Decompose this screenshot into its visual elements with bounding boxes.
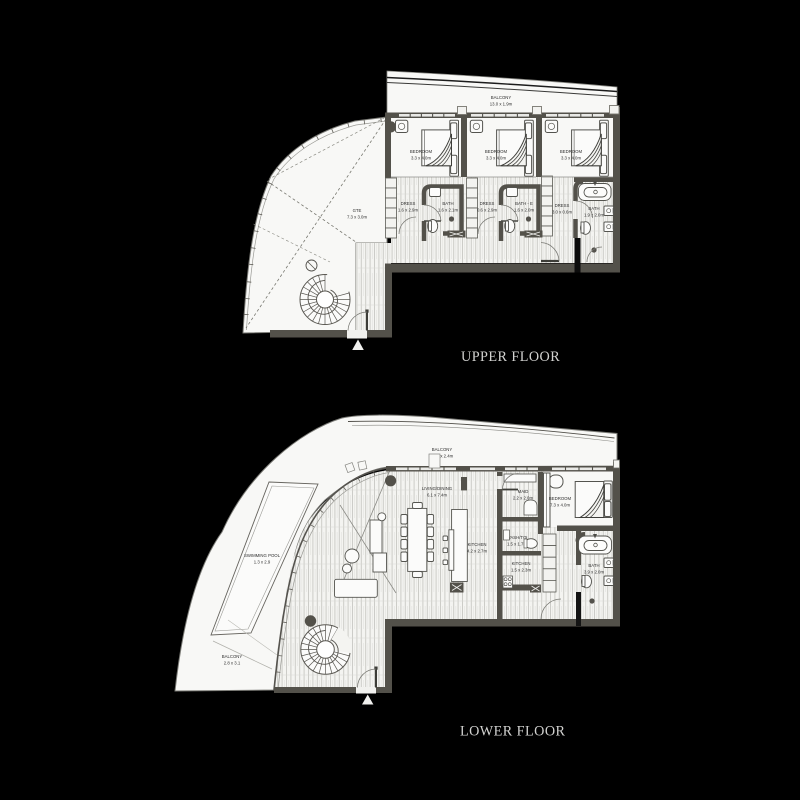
svg-text:MAID: MAID — [518, 489, 529, 494]
svg-text:7.3 x 4.0m: 7.3 x 4.0m — [550, 503, 570, 508]
svg-text:1.9 x 2.0m: 1.9 x 2.0m — [584, 213, 604, 218]
svg-text:3.0 x 0.6m: 3.0 x 0.6m — [552, 210, 572, 215]
svg-text:BEDROOM: BEDROOM — [549, 496, 572, 501]
svg-text:BALCONY: BALCONY — [432, 447, 453, 452]
svg-text:KITCHEN: KITCHEN — [512, 561, 531, 566]
svg-text:1.6 x 2.1m: 1.6 x 2.1m — [438, 208, 458, 213]
svg-text:6.1 x 7.4m: 6.1 x 7.4m — [427, 493, 447, 498]
svg-text:BALCONY: BALCONY — [222, 654, 243, 659]
svg-text:LIVING/DINING: LIVING/DINING — [422, 486, 453, 491]
svg-text:BATH: BATH — [588, 563, 599, 568]
svg-text:1.5 x 2.3m: 1.5 x 2.3m — [511, 568, 531, 573]
svg-text:BEDROOM: BEDROOM — [410, 149, 433, 154]
svg-text:7.3 x 3.0m: 7.3 x 3.0m — [347, 215, 367, 220]
svg-text:SWIMMING POOL: SWIMMING POOL — [244, 553, 281, 558]
svg-text:3.3 x 4.0m: 3.3 x 4.0m — [411, 156, 431, 161]
svg-text:DRESS: DRESS — [555, 203, 570, 208]
svg-text:0.6 x 2.9m: 0.6 x 2.9m — [477, 208, 497, 213]
svg-text:BEDROOM: BEDROOM — [560, 149, 583, 154]
svg-text:GTE: GTE — [353, 208, 362, 213]
svg-text:DRESS: DRESS — [401, 201, 416, 206]
svg-text:2.2 x 2.0m: 2.2 x 2.0m — [513, 496, 533, 501]
svg-text:BEDROOM: BEDROOM — [485, 149, 508, 154]
svg-text:1.6 x 2.0m: 1.6 x 2.0m — [514, 208, 534, 213]
svg-text:4.2 x 2.7m: 4.2 x 2.7m — [467, 549, 487, 554]
svg-text:3.3 x 4.0m: 3.3 x 4.0m — [486, 156, 506, 161]
svg-text:1.3 x 2.9: 1.3 x 2.9 — [254, 560, 271, 565]
svg-text:LOWER FLOOR: LOWER FLOOR — [460, 724, 566, 740]
svg-text:3.3 x 4.0m: 3.3 x 4.0m — [561, 156, 581, 161]
svg-text:2.8 x 3.1: 2.8 x 3.1 — [224, 661, 241, 666]
svg-text:UPPER FLOOR: UPPER FLOOR — [461, 349, 560, 365]
svg-text:DRESS: DRESS — [480, 201, 495, 206]
svg-text:BATH: BATH — [442, 201, 453, 206]
svg-text:BALCONY: BALCONY — [491, 95, 512, 100]
svg-text:1.6 x 2.9m: 1.6 x 2.9m — [398, 208, 418, 213]
svg-text:BATH - E: BATH - E — [515, 201, 533, 206]
svg-text:13.0 x 1.9m: 13.0 x 1.9m — [490, 102, 513, 107]
svg-text:3.9 x 2.0m: 3.9 x 2.0m — [584, 570, 604, 575]
svg-text:KITCHEN: KITCHEN — [468, 542, 487, 547]
